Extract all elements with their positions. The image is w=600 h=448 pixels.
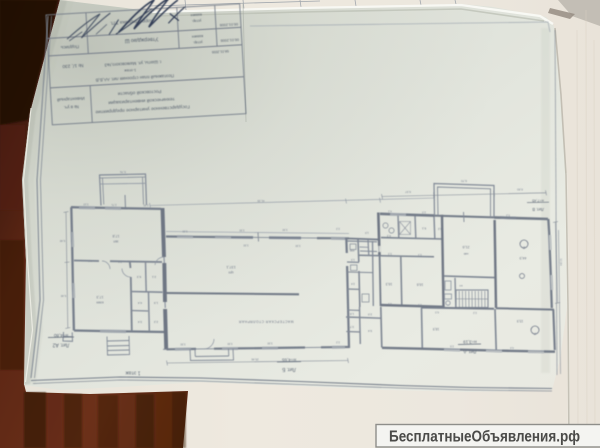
svg-text:Лит. А2: Лит. А2 xyxy=(52,342,69,348)
svg-text:кab: кab xyxy=(463,252,468,256)
svg-text:21,6: 21,6 xyxy=(463,245,470,249)
svg-text:2,2: 2,2 xyxy=(154,320,159,324)
svg-text:3,30: 3,30 xyxy=(282,228,288,232)
svg-text:3,3: 3,3 xyxy=(388,302,392,306)
svg-text:3,30: 3,30 xyxy=(267,342,273,346)
svg-text:2,71: 2,71 xyxy=(111,203,117,207)
svg-text:3,30: 3,30 xyxy=(295,244,301,248)
svg-text:3,30: 3,30 xyxy=(243,244,249,248)
svg-text:1,8: 1,8 xyxy=(350,312,354,316)
svg-text:2,6: 2,6 xyxy=(118,260,122,264)
svg-text:44,9: 44,9 xyxy=(520,256,527,260)
svg-text:№ в уч.: № в уч. xyxy=(64,104,79,110)
svg-text:18,9: 18,9 xyxy=(433,327,439,331)
svg-text:5,76: 5,76 xyxy=(120,170,126,174)
svg-text:кл: кл xyxy=(459,284,462,288)
svg-text:Лит. А: Лит. А xyxy=(463,349,477,355)
svg-text:4,1: 4,1 xyxy=(388,210,392,214)
svg-text:2,0: 2,0 xyxy=(368,313,372,317)
svg-text:3,30: 3,30 xyxy=(239,229,245,233)
svg-text:3,3: 3,3 xyxy=(388,252,392,256)
svg-text:3,3: 3,3 xyxy=(418,303,422,307)
svg-text:взамен: взамен xyxy=(192,34,204,39)
svg-text:6,70: 6,70 xyxy=(461,179,467,183)
svg-text:17,8: 17,8 xyxy=(113,234,120,238)
svg-text:устар.: устар. xyxy=(193,40,203,45)
svg-text:15,9: 15,9 xyxy=(517,319,523,323)
svg-text:6,48: 6,48 xyxy=(60,294,66,298)
svg-text:6,3: 6,3 xyxy=(137,275,142,279)
svg-text:6,0: 6,0 xyxy=(435,311,439,315)
svg-text:3,4: 3,4 xyxy=(138,320,143,324)
svg-text:2,2: 2,2 xyxy=(473,311,477,315)
svg-text:3,30: 3,30 xyxy=(180,343,186,347)
svg-text:1-этаж: 1-этаж xyxy=(124,68,137,74)
svg-text:2,0: 2,0 xyxy=(422,211,426,215)
svg-text:1,9: 1,9 xyxy=(154,301,159,305)
svg-text:4,4: 4,4 xyxy=(510,346,514,350)
svg-text:4,4: 4,4 xyxy=(138,301,143,305)
svg-text:2,1: 2,1 xyxy=(152,275,157,279)
svg-text:цех: цех xyxy=(228,271,233,275)
svg-text:2,2: 2,2 xyxy=(336,341,340,345)
svg-text:Лит. В: Лит. В xyxy=(532,207,544,212)
svg-text:9,4: 9,4 xyxy=(368,329,372,333)
svg-text:Лит. Б: Лит. Б xyxy=(281,366,296,372)
svg-text:41,35: 41,35 xyxy=(257,199,265,203)
svg-text:комн: комн xyxy=(96,301,103,305)
svg-text:взамен: взамен xyxy=(190,13,202,18)
svg-text:зал: зал xyxy=(113,240,118,244)
svg-text:3,7: 3,7 xyxy=(350,325,354,329)
svg-text:3,3: 3,3 xyxy=(418,253,422,257)
svg-text:кор: кор xyxy=(349,249,354,253)
svg-text:1 этаж: 1 этаж xyxy=(125,370,141,376)
svg-text:17,3: 17,3 xyxy=(97,295,104,299)
svg-text:8,80: 8,80 xyxy=(517,188,523,192)
svg-text:2,2: 2,2 xyxy=(336,227,340,231)
svg-text:3,9: 3,9 xyxy=(88,259,92,263)
svg-text:6,48: 6,48 xyxy=(59,239,65,243)
svg-text:2,30: 2,30 xyxy=(143,204,149,208)
svg-text:МАСТЕРСКАЯ СТОЛЯРНАЯ: МАСТЕРСКАЯ СТОЛЯРНАЯ xyxy=(238,320,293,324)
svg-text:2,6: 2,6 xyxy=(450,345,454,349)
svg-text:12,84: 12,84 xyxy=(559,259,563,266)
svg-text:1,0: 1,0 xyxy=(365,231,369,235)
svg-text:№ 1/, 230: № 1/, 230 xyxy=(62,62,84,69)
svg-text:5,2: 5,2 xyxy=(506,214,510,218)
svg-text:25,46: 25,46 xyxy=(251,358,259,362)
svg-text:БесплатныеОбъявления.рф: БесплатныеОбъявления.рф xyxy=(389,429,580,446)
svg-text:3,30: 3,30 xyxy=(227,342,233,346)
svg-text:н=3,19: н=3,19 xyxy=(463,340,477,345)
svg-text:16,6: 16,6 xyxy=(417,283,424,287)
svg-text:2,4: 2,4 xyxy=(351,282,355,286)
svg-text:3,30: 3,30 xyxy=(182,230,188,234)
svg-text:устар.: устар. xyxy=(192,19,202,24)
svg-text:16,3: 16,3 xyxy=(386,282,393,286)
svg-text:н=7,45: н=7,45 xyxy=(532,199,544,203)
svg-text:137,1: 137,1 xyxy=(226,265,236,269)
svg-text:6,1: 6,1 xyxy=(422,227,427,231)
svg-text:3,10: 3,10 xyxy=(83,203,89,207)
svg-text:6,97: 6,97 xyxy=(405,190,411,194)
svg-text:1,3: 1,3 xyxy=(351,258,355,262)
svg-text:4,3: 4,3 xyxy=(387,234,391,238)
